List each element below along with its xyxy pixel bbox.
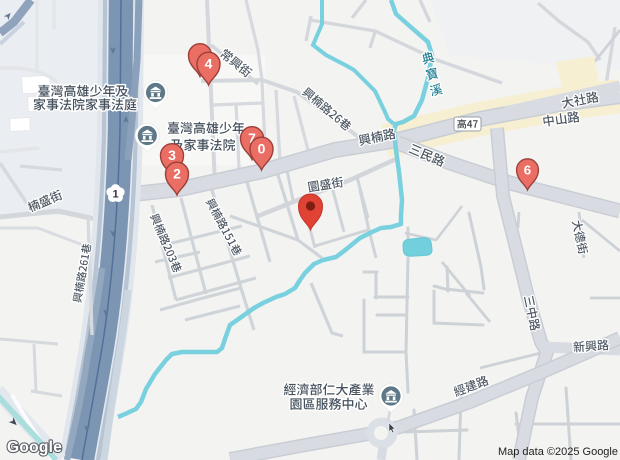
svg-text:Google: Google [7, 439, 62, 456]
svg-text:3: 3 [168, 147, 176, 163]
svg-text:Map data ©2025 Google: Map data ©2025 Google [498, 446, 618, 458]
svg-text:1: 1 [112, 188, 118, 200]
svg-text:0: 0 [258, 141, 266, 157]
svg-text:2: 2 [173, 166, 181, 182]
svg-text:4: 4 [205, 56, 213, 72]
svg-text:6: 6 [524, 162, 531, 177]
